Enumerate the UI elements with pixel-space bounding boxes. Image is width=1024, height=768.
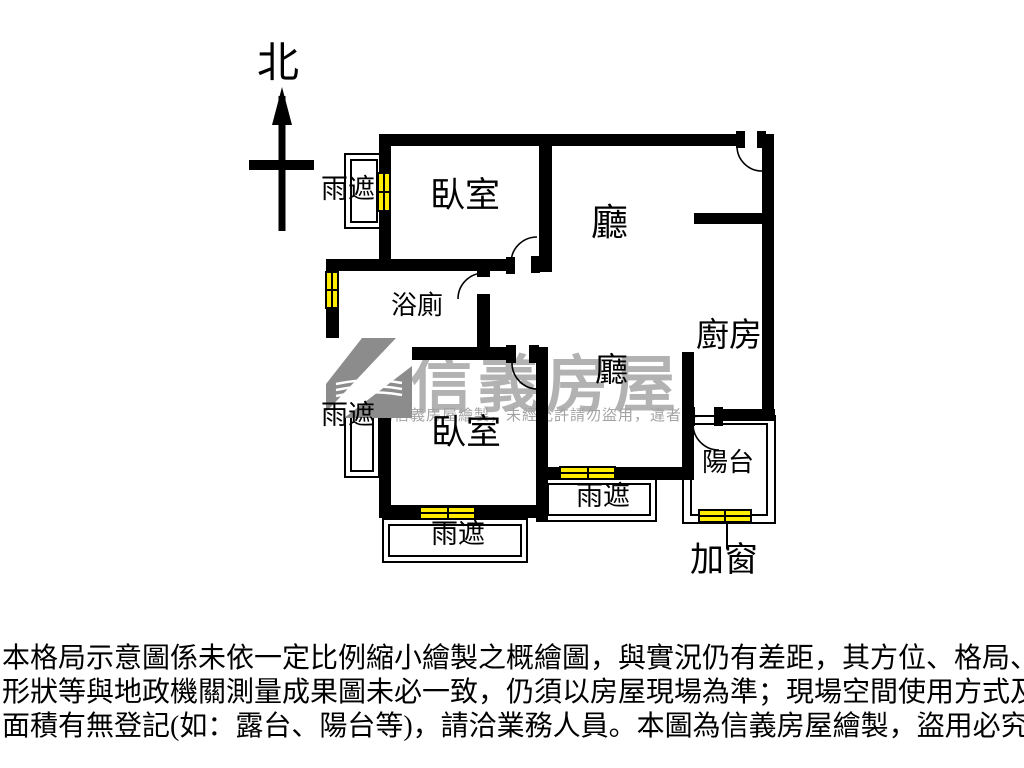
bathroom-label: 浴廁 [391,292,443,319]
wall-bedroom2-right [536,347,548,522]
rain-shelter-4-label: 雨遮 [576,482,630,510]
bedroom2-door-post-left [506,345,516,363]
kitchen-label: 廚房 [696,319,762,354]
added-window-label: 加窗 [690,543,758,579]
window-balcony-added [698,509,752,523]
wall-bedroom2-left [379,347,391,518]
wall-bathroom-bottom [327,347,511,360]
balcony-label: 陽台 [702,449,754,476]
bedroom1-door-post-left [506,257,515,274]
wall-bedroom1-right [539,134,552,272]
rain-shelter-3-label: 雨遮 [431,520,485,548]
bedroom2-label: 臥室 [431,415,501,452]
living-room-label: 廳 [591,205,628,244]
entry-door-post-left [736,131,745,148]
window-dining-bottom [559,466,616,480]
dining-room-label: 廳 [595,354,628,389]
balcony-door-post-left [686,407,695,426]
disclaimer-line-3: 面積有無登記(如：露台、陽台等)，請洽業務人員。本圖為信義房屋繪製，盜用必究。 [2,704,1024,744]
wall-top [380,134,741,146]
bedroom1-label: 臥室 [430,178,500,215]
wall-kitchen-bottom [714,409,775,421]
compass-north-label: 北 [257,42,299,86]
floorplan-canvas: 信義房屋 為信義房屋繪製，未經允許請勿盜用，違者必 [0,0,1024,768]
rain-shelter-2-label: 雨遮 [321,401,375,429]
window-bedroom1-left [377,172,391,212]
window-bedroom2-bottom [419,506,476,520]
north-arrow [249,87,314,231]
wall-kitchen-top [694,213,774,224]
rain-shelter-1-label: 雨遮 [321,175,375,203]
window-bathroom-left [325,271,339,309]
bathroom-door-post-top [477,261,490,277]
wall-outer-right [762,134,774,421]
entry-door-arc [737,146,762,171]
